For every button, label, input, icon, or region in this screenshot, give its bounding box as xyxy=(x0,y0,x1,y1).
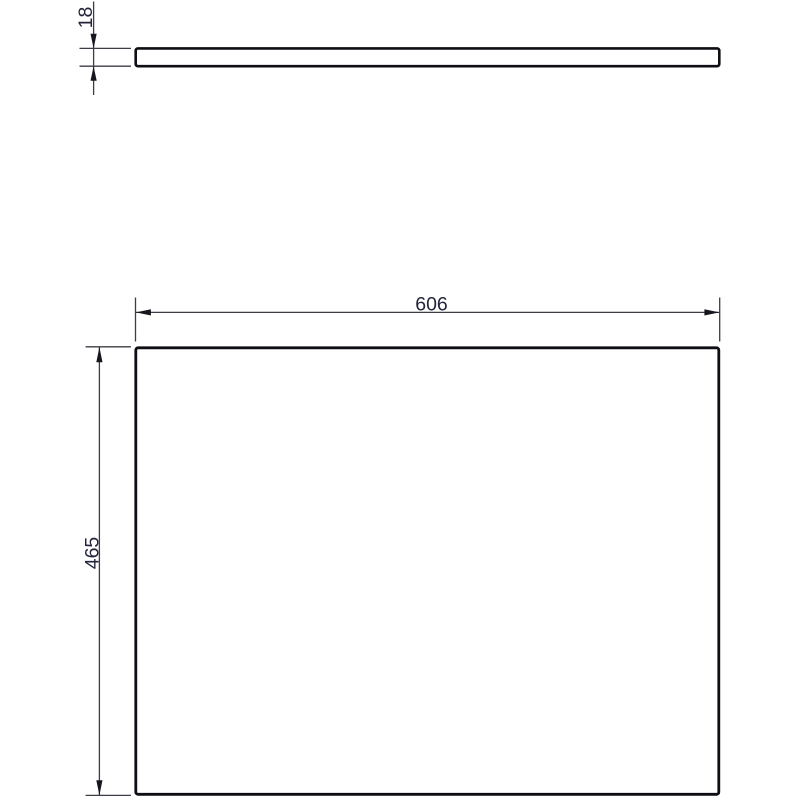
svg-text:18: 18 xyxy=(75,7,97,29)
svg-text:465: 465 xyxy=(81,537,103,570)
svg-text:606: 606 xyxy=(415,294,448,316)
